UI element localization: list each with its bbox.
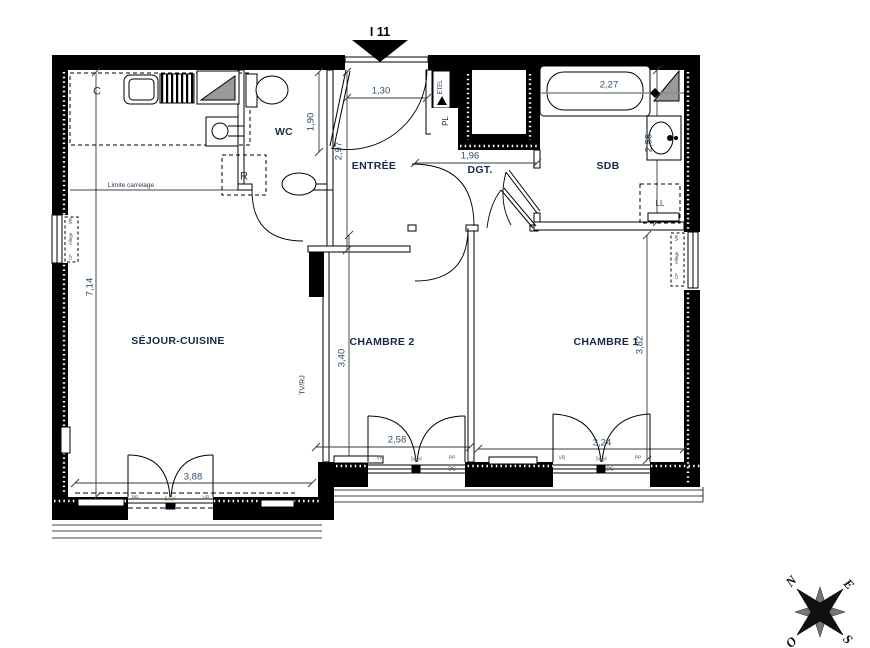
left-window-cf: CF	[69, 254, 74, 260]
right-window-allege: Allège	[675, 252, 680, 265]
sejour-door-vr: VR	[203, 497, 210, 502]
compass-rose	[795, 587, 845, 637]
duct	[309, 252, 324, 297]
dim-entry-door: 1,30	[372, 86, 391, 96]
tv-rj-label: TV/RJ	[300, 375, 307, 394]
dim-wc-depth: 1,90	[306, 113, 316, 132]
dim-sdb-depth: 2,55	[644, 134, 654, 153]
sejour-door-seuil: Seuil	[164, 498, 175, 503]
sejour-door-pp: PP	[132, 497, 139, 502]
room-label-chambre1: CHAMBRE 1	[573, 337, 638, 348]
left-window-vr: VR	[69, 218, 74, 224]
right-window-cf: CF	[675, 273, 680, 279]
ch1-window-vr: VR	[559, 457, 566, 462]
left-window-allege: Allège	[69, 233, 74, 246]
room-label-entree: ENTRÉE	[352, 161, 396, 172]
etel-label: ETEL	[438, 79, 444, 94]
ch1-window-seuil: Seuil	[595, 458, 606, 463]
exterior-walls	[52, 55, 700, 520]
room-label-chambre2: CHAMBRE 2	[349, 337, 414, 348]
floor-plan-drawing	[0, 0, 870, 648]
balcony-lines	[52, 487, 703, 538]
room-label-sdb: SDB	[596, 161, 619, 172]
dim-ch2-width: 2,58	[388, 435, 407, 445]
dim-ch1-width: 3,24	[593, 438, 612, 448]
ch1-window-pp: PP	[635, 457, 642, 462]
washer-label: LL	[656, 200, 665, 208]
ch1-dc-label: DC	[606, 468, 613, 473]
right-window-vr: VR	[675, 235, 680, 241]
ch2-dc-label: DC	[448, 468, 455, 473]
dim-sejour-height: 7,14	[85, 278, 95, 297]
tiling-limit-label: Limite carrelage	[108, 183, 154, 190]
dimension-lines	[71, 66, 688, 501]
ch2-window-vr: VR	[377, 457, 384, 462]
room-label-dgt: DGT.	[467, 165, 492, 176]
ch2-window-pp: PP	[449, 457, 456, 462]
room-label-wc: WC	[275, 127, 293, 138]
dim-bath: 2,27	[600, 80, 619, 90]
dim-sejour-door: 3,88	[184, 472, 203, 482]
kitchen-c-label: C	[93, 87, 101, 98]
fridge-label: R	[240, 172, 248, 183]
closet-label: PL	[442, 116, 450, 126]
dim-entree-len: 2,97	[334, 142, 344, 161]
dim-ch1-height: 3,82	[635, 336, 645, 355]
floor-plan: I 11 SÉJOUR-CUISINE CHAMBRE 2 CHAMBRE 1 …	[0, 0, 870, 648]
ch2-window-seuil: Seuil	[410, 458, 421, 463]
room-label-sejour: SÉJOUR-CUISINE	[131, 336, 224, 347]
dim-ch2-height: 3,40	[337, 349, 347, 368]
dim-dgt-width: 1,96	[461, 151, 480, 161]
plan-title: I 11	[370, 26, 390, 39]
